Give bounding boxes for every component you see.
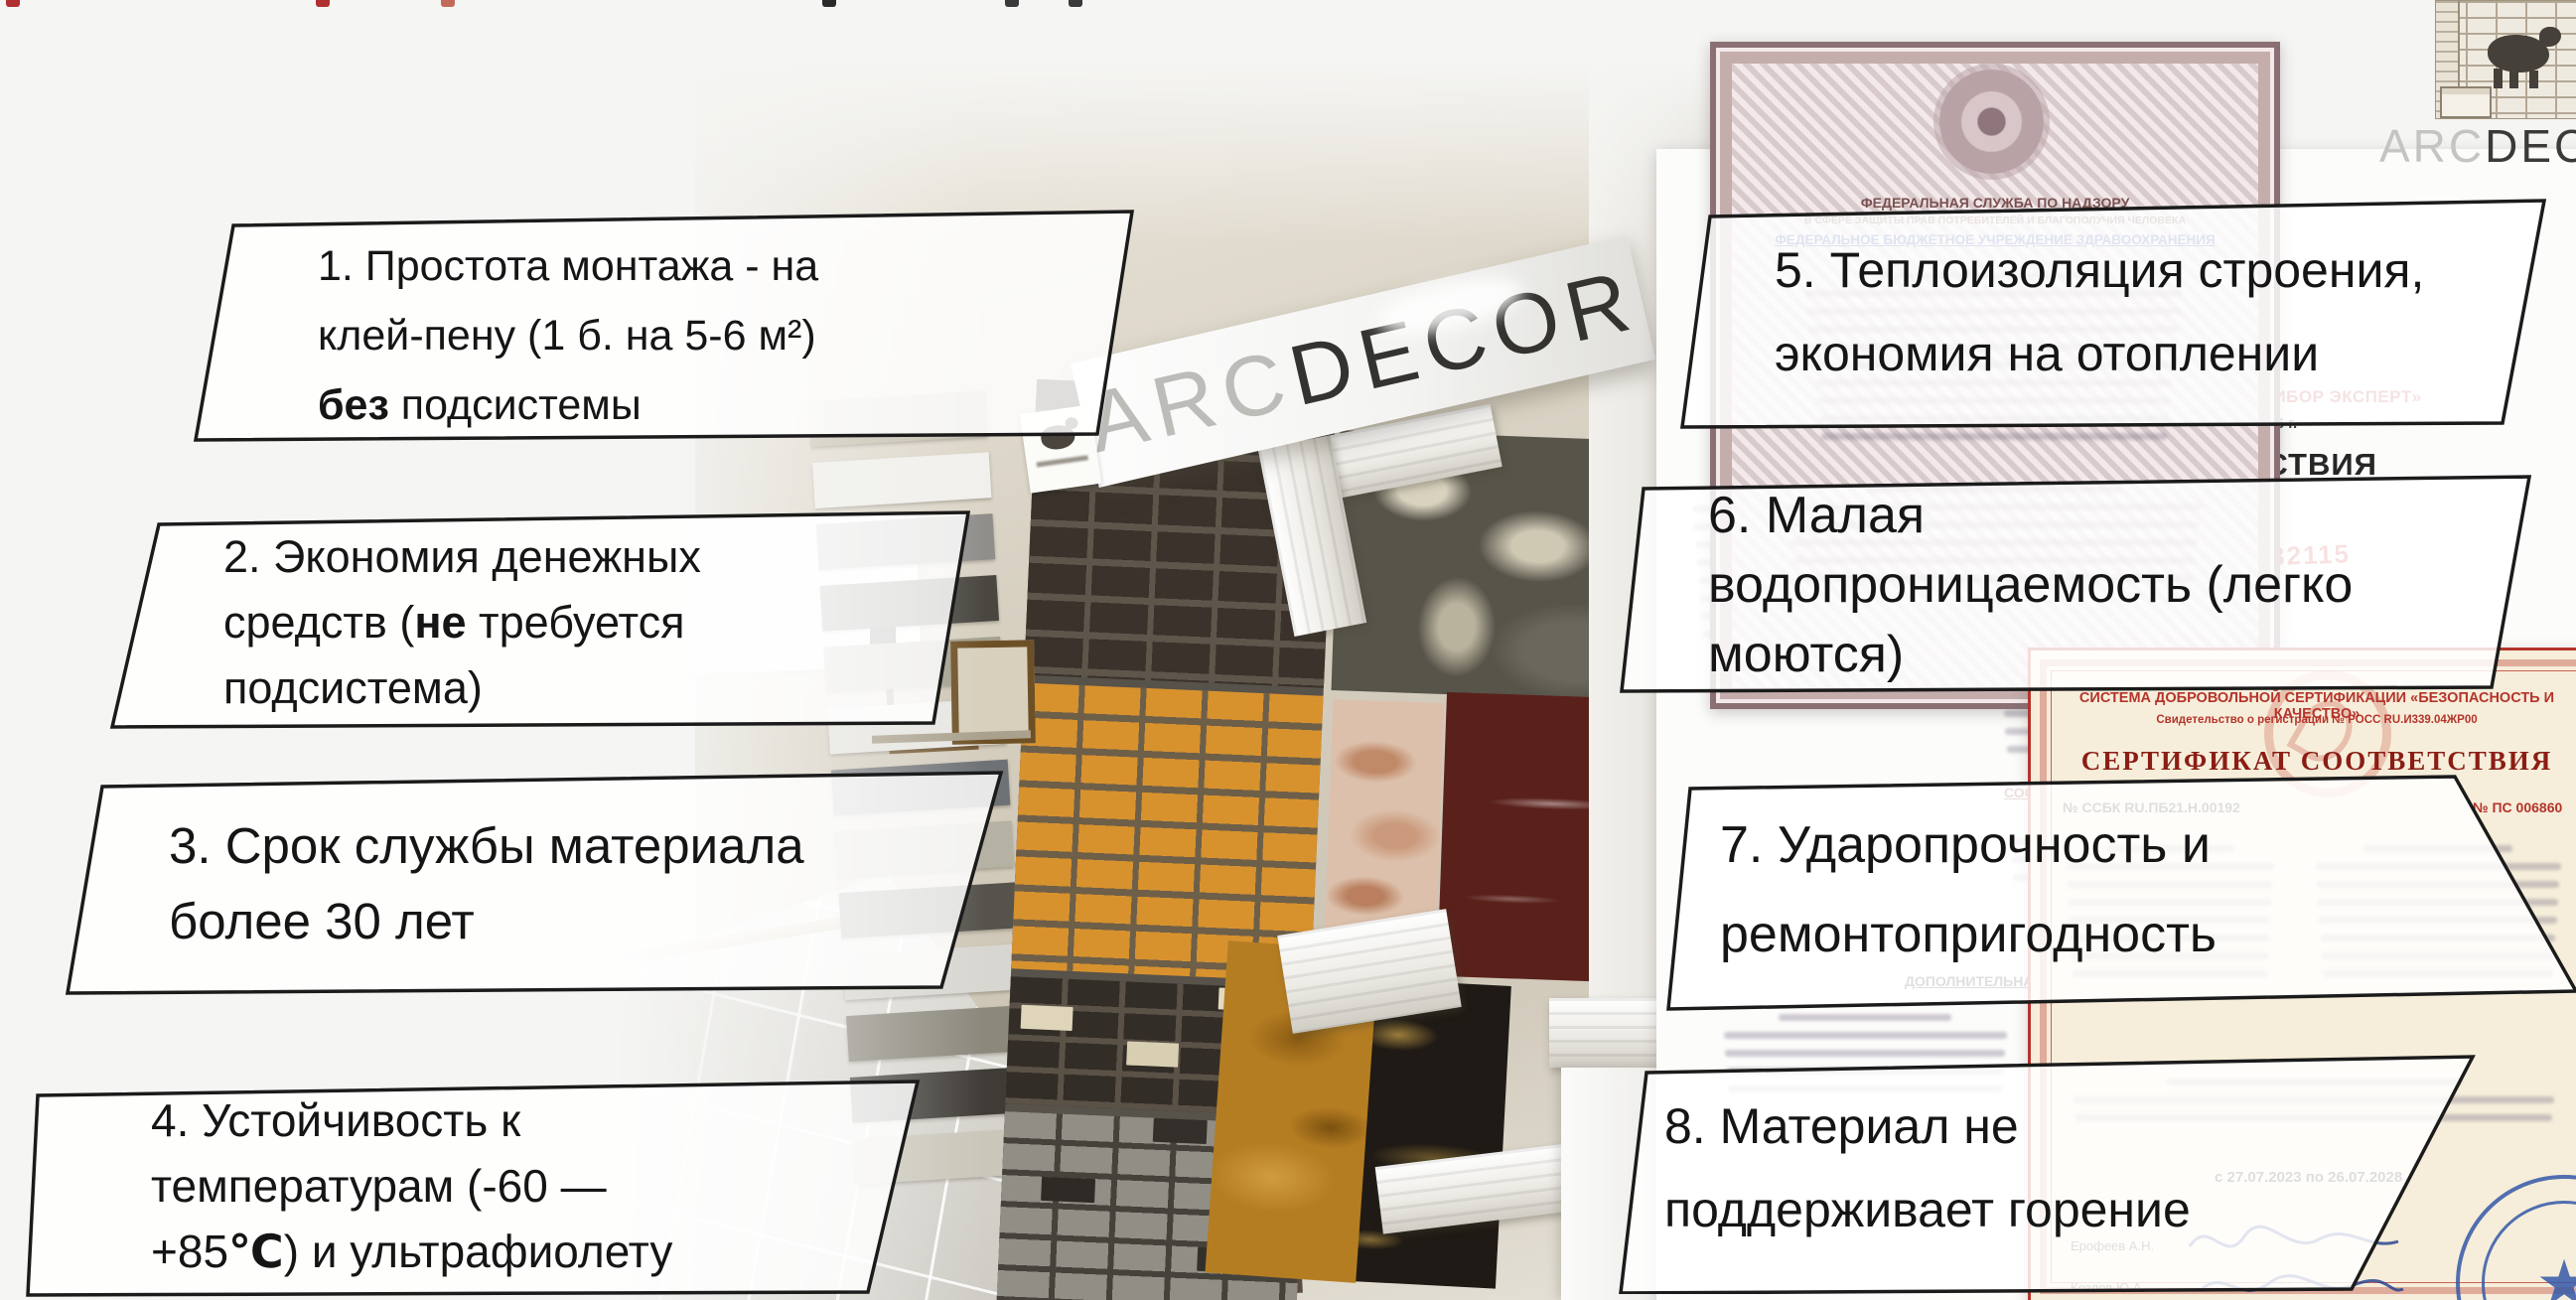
logo-bear-leg-icon xyxy=(2529,71,2538,88)
callout-text: 7. Ударопрочность иремонтопригодность xyxy=(1660,775,2576,1013)
text-blur-line xyxy=(1724,1032,2007,1039)
text-blur-line xyxy=(1821,433,2167,440)
callout-line: 7. Ударопрочность и xyxy=(1720,800,2536,890)
logo-pedestal-icon xyxy=(2440,86,2492,118)
callout-text: 3. Срок службы материалаболее 30 лет xyxy=(58,767,1006,997)
logo-bear-leg-icon xyxy=(2509,71,2518,88)
callout-line: водопроницаемость (легко xyxy=(1708,550,2493,620)
callout-line: ремонтопригодность xyxy=(1720,890,2536,979)
callout-text: 4. Устойчивость ктемпературам (-60 —+85℃… xyxy=(22,1078,921,1298)
callout-line: 8. Материал не xyxy=(1664,1084,2451,1168)
quality-reg-line: Свидетельство о регистрации № РОСС RU.И3… xyxy=(2031,714,2576,726)
title-remnant-mark xyxy=(822,0,836,7)
callout-line: моются) xyxy=(1708,620,2493,689)
callout-line: клей-пену (1 б. на 5-6 м²) xyxy=(318,301,1077,370)
callout-line: 1. Простота монтажа - на xyxy=(318,231,1077,301)
callout-text: 8. Материал неподдерживает горение xyxy=(1617,1051,2491,1294)
logo-arc-text: ARC xyxy=(2379,120,2485,172)
callout-line: поддерживает горение xyxy=(1664,1168,2451,1251)
callout-line: 5. Теплоизоляция строения, xyxy=(1775,228,2509,312)
title-remnant-mark xyxy=(1005,0,1019,7)
logo-bear-leg-icon xyxy=(2494,69,2503,88)
callout-line: средств (не требуется xyxy=(223,590,914,655)
callout-text: 5. Теплоизоляция строения,экономия на от… xyxy=(1680,195,2549,431)
title-remnant-mark xyxy=(1069,0,1082,7)
callout-5: 5. Теплоизоляция строения,экономия на от… xyxy=(1680,195,2549,431)
callout-text: 6. Малаяводопроницаемость (легкомоются) xyxy=(1614,467,2532,697)
blue-stamp-inner-ring: ★ xyxy=(2482,1201,2576,1300)
text-blur-line xyxy=(1779,1014,1951,1021)
callout-line: 3. Срок службы материала xyxy=(169,808,946,884)
callout-text: 1. Простота монтажа - наклей-пену (1 б. … xyxy=(184,204,1137,447)
arcdecor-logo: ARCDECOR xyxy=(2379,0,2576,174)
callout-2: 2. Экономия денежныхсредств (не требуетс… xyxy=(104,508,973,732)
callout-7: 7. Ударопрочность иремонтопригодность xyxy=(1660,775,2576,1013)
logo-bear-head-icon xyxy=(2539,27,2561,47)
slide: ARCDECOR СИСТЕМА ДОБРОВОЛЬНОЙ СЕРТИФИКАЦ… xyxy=(0,0,2576,1300)
title-remnant-mark xyxy=(441,0,455,7)
callout-4: 4. Устойчивость ктемпературам (-60 —+85℃… xyxy=(22,1078,921,1298)
callout-line: +85℃) и ультрафиолету xyxy=(151,1219,871,1284)
callout-line: более 30 лет xyxy=(169,884,946,959)
marble-sample-pink xyxy=(1325,699,1445,947)
dark-brick-accent xyxy=(1153,1118,1208,1144)
quality-title: СЕРТИФИКАТ СООТВЕТСТВИЯ xyxy=(2031,746,2576,777)
callout-3: 3. Срок службы материалаболее 30 лет xyxy=(58,767,1006,997)
callout-line: 2. Экономия денежных xyxy=(223,524,914,590)
rosette-icon xyxy=(1939,70,2044,174)
callout-line: 4. Устойчивость к xyxy=(151,1087,871,1153)
logo-decor-text: DECOR xyxy=(2485,120,2576,172)
callout-line: без подсистемы xyxy=(318,370,1077,440)
title-remnant-mark xyxy=(316,0,330,7)
callout-line: 6. Малая xyxy=(1708,481,2493,550)
callout-text: 2. Экономия денежныхсредств (не требуетс… xyxy=(104,508,973,732)
callout-6: 6. Малаяводопроницаемость (легкомоются) xyxy=(1614,467,2532,697)
callout-line: экономия на отоплении xyxy=(1775,312,2509,395)
callout-8: 8. Материал неподдерживает горение xyxy=(1617,1051,2491,1294)
logo-text: ARCDECOR xyxy=(2379,119,2576,173)
callout-line: подсистема) xyxy=(223,655,914,721)
logo-emblem xyxy=(2435,0,2576,119)
callout-1: 1. Простота монтажа - наклей-пену (1 б. … xyxy=(184,204,1137,447)
callout-line: температурам (-60 — xyxy=(151,1153,871,1219)
title-remnant-mark xyxy=(6,0,20,7)
